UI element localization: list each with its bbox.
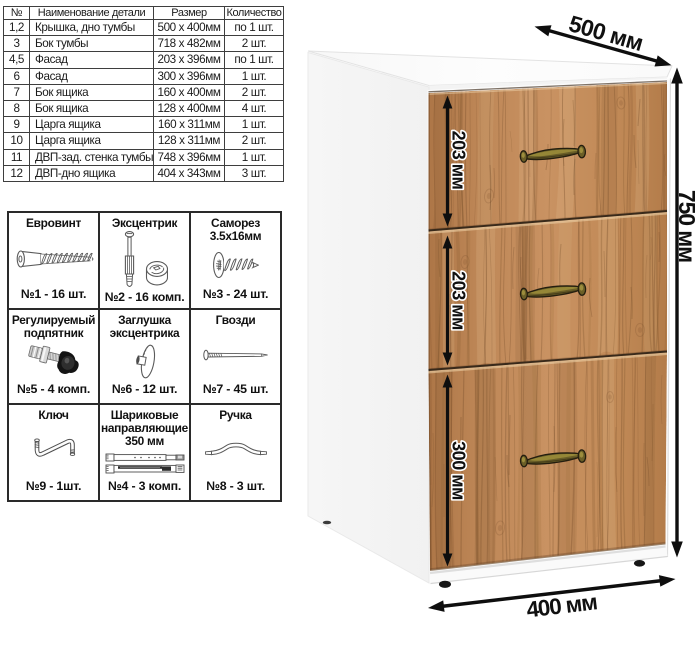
svg-text:300 мм: 300 мм [449, 441, 469, 500]
svg-text:203 мм: 203 мм [449, 131, 469, 190]
svg-text:500 мм: 500 мм [566, 10, 646, 56]
svg-text:203 мм: 203 мм [449, 271, 469, 330]
svg-text:750 мм: 750 мм [674, 190, 700, 262]
